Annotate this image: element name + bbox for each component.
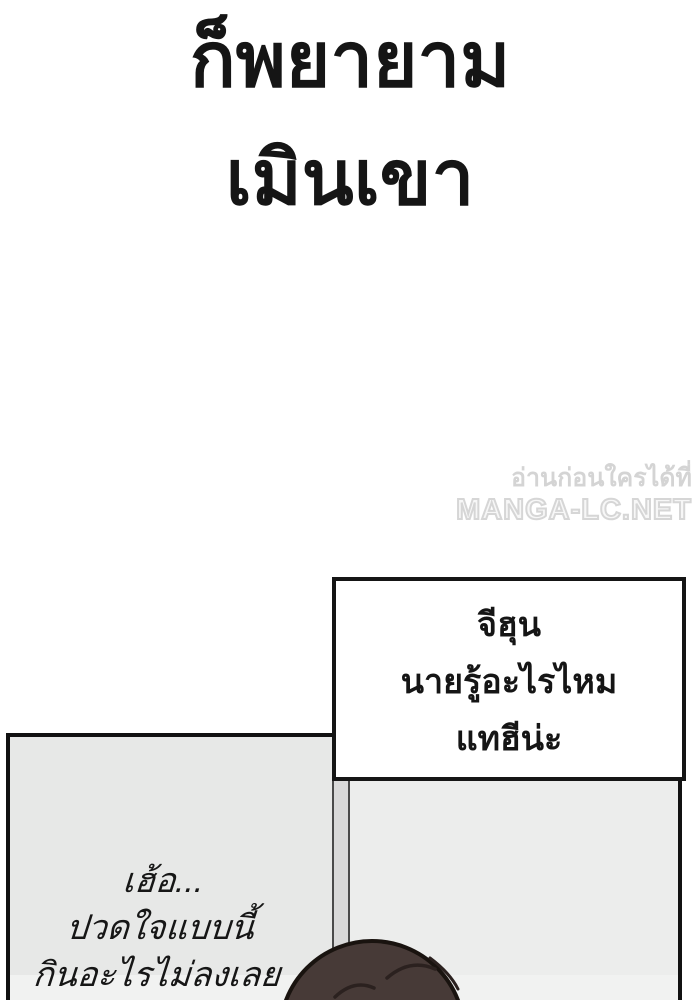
- character-head: [272, 933, 472, 1000]
- watermark-site-name: MANGA-LC.NET: [456, 493, 692, 528]
- manga-page: ก็พยายาม เมินเขา อ่านก่อนใครได้ที่ MANGA…: [0, 0, 700, 1000]
- narration-title-line1: ก็พยายาม: [0, 2, 700, 120]
- speech-line3: แทฮีน่ะ: [336, 711, 682, 768]
- thought-line2: ปวดใจแบบนี้: [28, 905, 291, 952]
- site-watermark: อ่านก่อนใครได้ที่ MANGA-LC.NET: [456, 463, 692, 528]
- narration-title-line2: เมินเขา: [0, 120, 700, 238]
- speech-line2: นายรู้อะไรไหม: [336, 654, 682, 711]
- narration-title: ก็พยายาม เมินเขา: [0, 2, 700, 238]
- thought-line1: เฮ้อ...: [32, 858, 295, 905]
- inner-thought-text: เฮ้อ... ปวดใจแบบนี้ กินอะไรไม่ลงเลย: [25, 858, 295, 999]
- thought-line3: กินอะไรไม่ลงเลย: [25, 952, 288, 999]
- watermark-note: อ่านก่อนใครได้ที่: [456, 463, 692, 493]
- speech-line1: จีฮุน: [336, 597, 682, 654]
- speech-bubble: จีฮุน นายรู้อะไรไหม แทฮีน่ะ: [332, 577, 686, 781]
